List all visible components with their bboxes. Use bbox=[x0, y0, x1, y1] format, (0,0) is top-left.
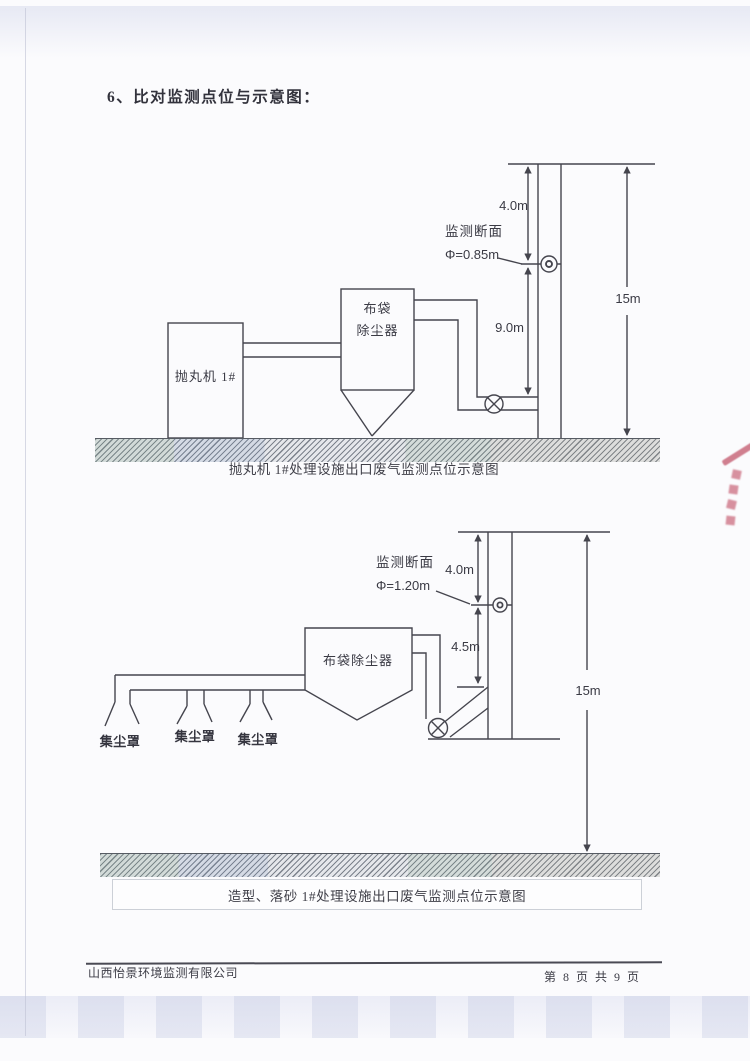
d2-inclined-duct bbox=[442, 687, 488, 737]
d2-leader-line bbox=[436, 591, 470, 604]
stamp-mark bbox=[728, 484, 738, 494]
d2-caption: 造型、落砂 1#处理设施出口废气监测点位示意图 bbox=[228, 885, 526, 905]
d2-duct-hoods bbox=[115, 675, 305, 690]
d1-dim-4m-label: 4.0m bbox=[494, 198, 528, 213]
d2-diameter-label: Φ=1.20m bbox=[376, 578, 430, 593]
d2-hood-label-1: 集尘罩 bbox=[93, 734, 147, 749]
d1-collector-funnel bbox=[341, 390, 414, 436]
d1-duct-upper bbox=[414, 300, 538, 397]
d2-dim-45m-label: 4.5m bbox=[446, 639, 480, 654]
scanned-report-page: 6、比对监测点位与示意图： bbox=[0, 0, 750, 1061]
stamp-mark bbox=[731, 469, 742, 480]
d1-monitor-section-label: 监测断面 bbox=[445, 224, 503, 240]
d1-diameter-label: Φ=0.85m bbox=[445, 247, 499, 262]
d2-collector-box bbox=[305, 628, 412, 720]
red-stamp-fragment bbox=[702, 438, 750, 543]
diagram2-line-art bbox=[105, 532, 610, 851]
d1-leader-line bbox=[498, 258, 522, 264]
footer-page-number: 第 8 页 共 9 页 bbox=[544, 970, 641, 984]
stamp-arc bbox=[721, 440, 750, 466]
footer-company: 山西怡景环境监测有限公司 bbox=[88, 966, 238, 980]
d1-stack bbox=[538, 164, 561, 438]
stamp-mark bbox=[726, 499, 737, 510]
d1-ground bbox=[95, 438, 660, 462]
d2-collector-label: 布袋除尘器 bbox=[303, 653, 413, 668]
d2-hood-1 bbox=[105, 675, 139, 726]
d2-hood-label-2: 集尘罩 bbox=[168, 729, 222, 744]
d1-monitor-port-icon bbox=[541, 256, 557, 272]
d2-dim-4m-label: 4.0m bbox=[440, 562, 474, 577]
stamp-mark bbox=[726, 516, 736, 526]
d1-dim-9m-label: 9.0m bbox=[490, 320, 524, 335]
d2-caption-box: 造型、落砂 1#处理设施出口废气监测点位示意图 bbox=[112, 879, 642, 910]
d1-collector-label-line1: 布袋 bbox=[341, 301, 414, 316]
d2-stack bbox=[488, 532, 512, 739]
d2-hood-2 bbox=[177, 690, 212, 724]
d1-machine-label: 抛丸机 1# bbox=[168, 369, 243, 384]
d1-caption: 抛丸机 1#处理设施出口废气监测点位示意图 bbox=[114, 462, 614, 478]
d2-duct-lower bbox=[412, 653, 426, 719]
d1-duct-machine-collector bbox=[243, 343, 341, 357]
d1-dim-15m-label: 15m bbox=[610, 291, 646, 306]
d2-hood-label-3: 集尘罩 bbox=[231, 732, 285, 747]
d2-hood-3 bbox=[240, 690, 272, 722]
d2-dim-15m-label: 15m bbox=[572, 683, 604, 698]
d2-monitor-section-label: 监测断面 bbox=[376, 555, 434, 571]
d2-monitor-port-icon bbox=[493, 598, 507, 612]
d1-collector-label-line2: 除尘器 bbox=[341, 323, 414, 338]
d2-ground bbox=[100, 853, 660, 877]
